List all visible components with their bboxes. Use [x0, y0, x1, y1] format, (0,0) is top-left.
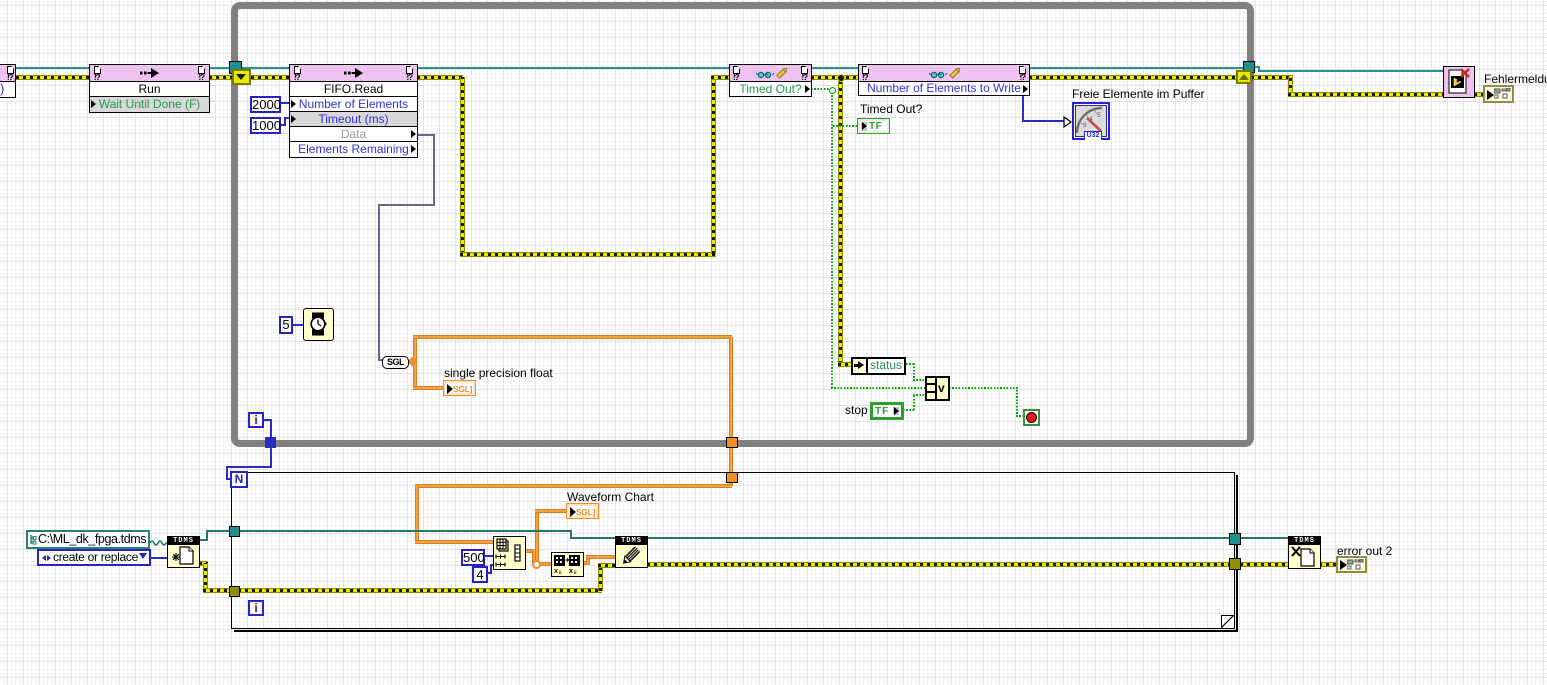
svg-text:x: x	[554, 568, 558, 575]
svg-text:ii: ii	[559, 570, 562, 575]
svg-text:x: x	[569, 568, 573, 575]
svg-text:5: 5	[1097, 112, 1101, 119]
svg-text:ii: ii	[574, 570, 577, 575]
svg-text:3: 3	[1083, 122, 1087, 129]
